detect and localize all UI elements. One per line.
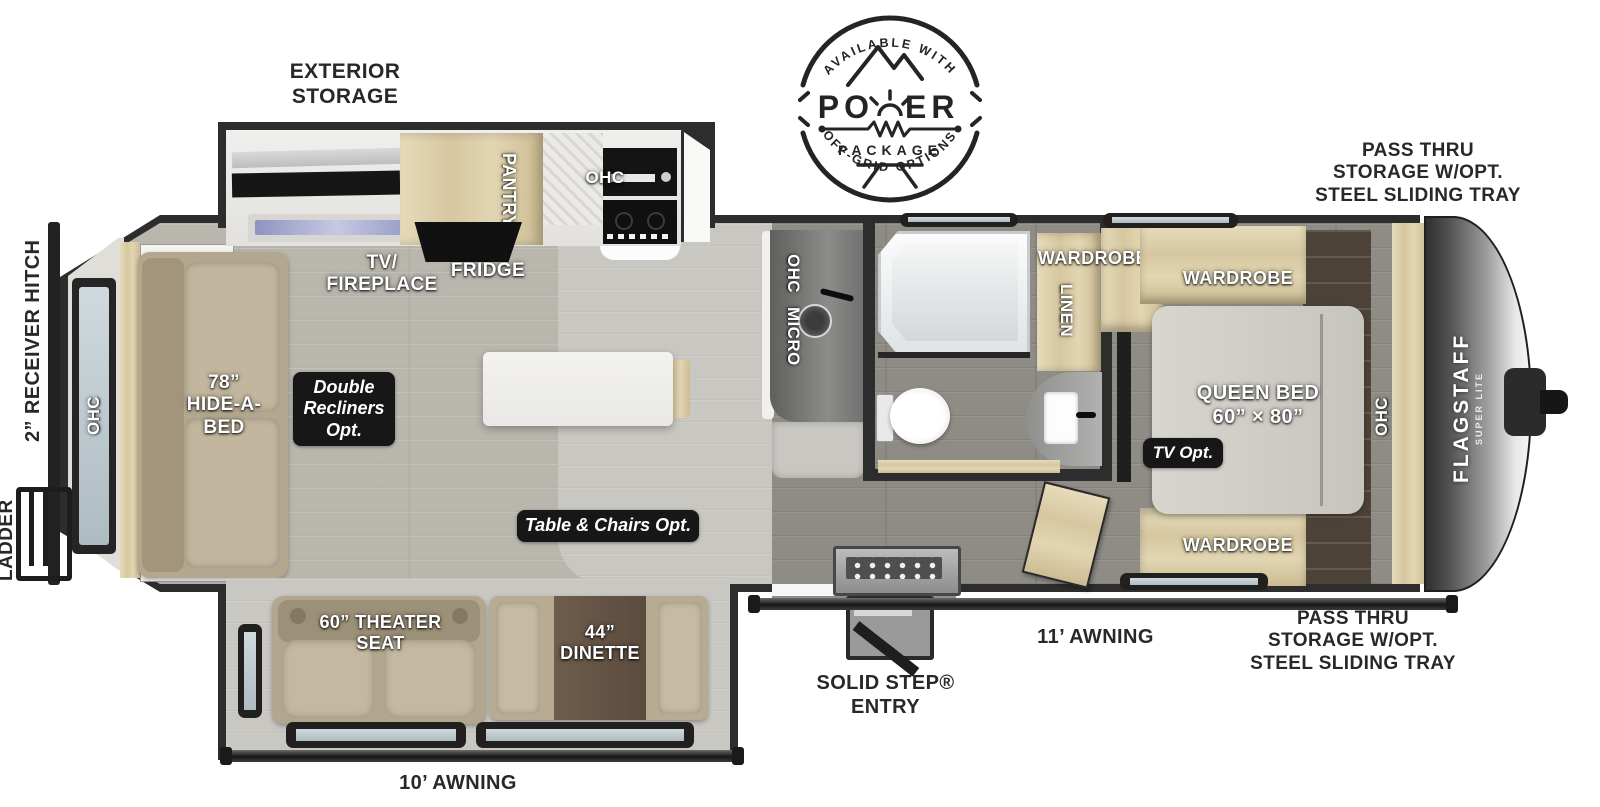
sofa-cushion-bottom: [184, 418, 280, 568]
bath-sink: [1044, 392, 1078, 444]
toilet-bowl: [890, 388, 950, 444]
bedroom-top-window: [1103, 213, 1238, 228]
double-recliners-badge: Double Recliners Opt.: [293, 372, 395, 446]
zigzag-dot-left: [819, 126, 826, 133]
awning-11ft-cap-right: [1446, 595, 1458, 613]
theater-seat-label: 60” THEATER SEAT: [298, 612, 463, 654]
tv-opt-badge: TV Opt.: [1143, 438, 1223, 468]
shower-pan: [892, 243, 1018, 341]
ohc-label-part: OHC: [784, 254, 803, 293]
griddle-burners: [846, 557, 942, 579]
bath-door-threshold: [878, 460, 1060, 473]
awning-10ft-cap-right: [732, 747, 744, 765]
shower: [878, 231, 1030, 355]
ladder: [16, 487, 72, 581]
ladder-rung-1: [29, 492, 34, 566]
range-vent-arc: [600, 246, 680, 260]
awning-10ft-label: 10’ AWNING: [378, 772, 538, 796]
entry-steps-rail: [853, 621, 920, 676]
bedroom-ohc-label: OHC: [1372, 384, 1392, 450]
hitch-coupler: [1540, 390, 1568, 414]
bedroom-bottom-window: [1120, 573, 1268, 590]
dinette-label: 44” DINETTE: [544, 622, 656, 664]
kitchen-ohc-label: OHC: [576, 168, 634, 188]
solid-step-entry-label: SOLID STEP® ENTRY: [798, 672, 973, 719]
slide-bottom-window-2-glass: [486, 729, 684, 741]
tv-opt-panel: [1117, 332, 1131, 482]
bedroom-wardrobe-top: [1140, 226, 1306, 304]
burner-1: [615, 212, 633, 230]
power-word-left: PO: [818, 89, 874, 125]
package-word: PACKAGE: [838, 142, 942, 158]
ladder-rung-2: [43, 492, 48, 566]
micro-label-part: MICRO: [784, 307, 803, 366]
bedroom-wardrobe-top-label: WARDROBE: [1168, 268, 1308, 289]
awning-11ft-cap-left: [748, 595, 760, 613]
awning-10ft-cap-left: [220, 747, 232, 765]
slide-bottom-window-2: [476, 722, 694, 748]
shower-glass-wall: [878, 352, 1030, 358]
bath-top-window-glass: [908, 217, 1010, 222]
burner-2: [647, 212, 665, 230]
fireplace-console: [248, 214, 412, 242]
pass-thru-storage-bottom-label: PASS THRU STORAGE W/OPT. STEEL SLIDING T…: [1208, 608, 1498, 675]
exterior-storage-label: EXTERIOR STORAGE: [245, 60, 445, 110]
fireplace-glass: [255, 220, 403, 235]
slide-bottom-window-1-glass: [296, 729, 456, 741]
bedroom-wardrobe-bottom-label: WARDROBE: [1168, 535, 1308, 556]
sofa-back-trim: [120, 242, 140, 578]
bedroom-top-window-glass: [1112, 217, 1229, 223]
hide-a-bed-label: 78” HIDE-A- BED: [163, 372, 285, 439]
slide-bottom-window-1: [286, 722, 466, 748]
power-package-logo: AVAILABLE WITH OFF-GRID OPTIONS PO ER PA…: [788, 5, 992, 209]
range-cooktop: [603, 200, 677, 244]
awning-11ft-rod: [752, 598, 1454, 610]
dinette-bench-left: [496, 602, 540, 714]
bath-top-window: [900, 213, 1018, 227]
fridge-label: FRIDGE: [432, 260, 544, 282]
logo-arc-top-text: AVAILABLE WITH: [820, 36, 959, 78]
zigzag-dot-right: [955, 126, 962, 133]
kitchen-island: [483, 352, 673, 426]
queen-bed-label: QUEEN BED 60” × 80”: [1158, 382, 1358, 429]
bedroom-bottom-window-glass: [1130, 578, 1258, 585]
rear-ohc-label: OHC: [84, 378, 104, 454]
bath-faucet: [1076, 412, 1096, 418]
receiver-hitch-label: 2” RECEIVER HITCH: [22, 226, 46, 456]
floorplan-canvas: EXTERIOR STORAGE PASS THRU STORAGE W/OPT…: [0, 0, 1600, 807]
bath-wall-left: [863, 223, 875, 481]
table-chairs-badge: Table & Chairs Opt.: [517, 510, 699, 542]
sun-rays: [871, 91, 909, 104]
kitchen-sink: [798, 304, 832, 338]
tv-panel-livingroom: [232, 171, 400, 198]
brand-logo: FLAGSTAFF SUPER LITE: [1450, 288, 1484, 528]
power-word-right: ER: [905, 89, 959, 125]
range-controls: [607, 234, 673, 239]
exterior-griddle: [833, 546, 961, 596]
brand-subtitle: SUPER LITE: [1474, 288, 1484, 528]
awning-11ft-label: 11’ AWNING: [1018, 626, 1173, 650]
slide-left-window: [238, 624, 262, 718]
awning-10ft-rod: [224, 750, 740, 762]
front-ohc-cabinet: [1392, 223, 1426, 584]
kitchen-lower-cabinet: [772, 422, 864, 478]
linen-label: LINEN: [1056, 262, 1076, 358]
sun-icon: [879, 105, 901, 116]
brand-name: FLAGSTAFF: [1450, 288, 1474, 528]
slide-left-window-glass: [244, 632, 256, 710]
dinette-bench-right: [658, 602, 702, 714]
pass-thru-storage-top-label: PASS THRU STORAGE W/OPT. STEEL SLIDING T…: [1283, 140, 1553, 207]
ohc-micro-label: OHCMICRO: [783, 254, 803, 366]
microwave-knob: [661, 172, 671, 182]
